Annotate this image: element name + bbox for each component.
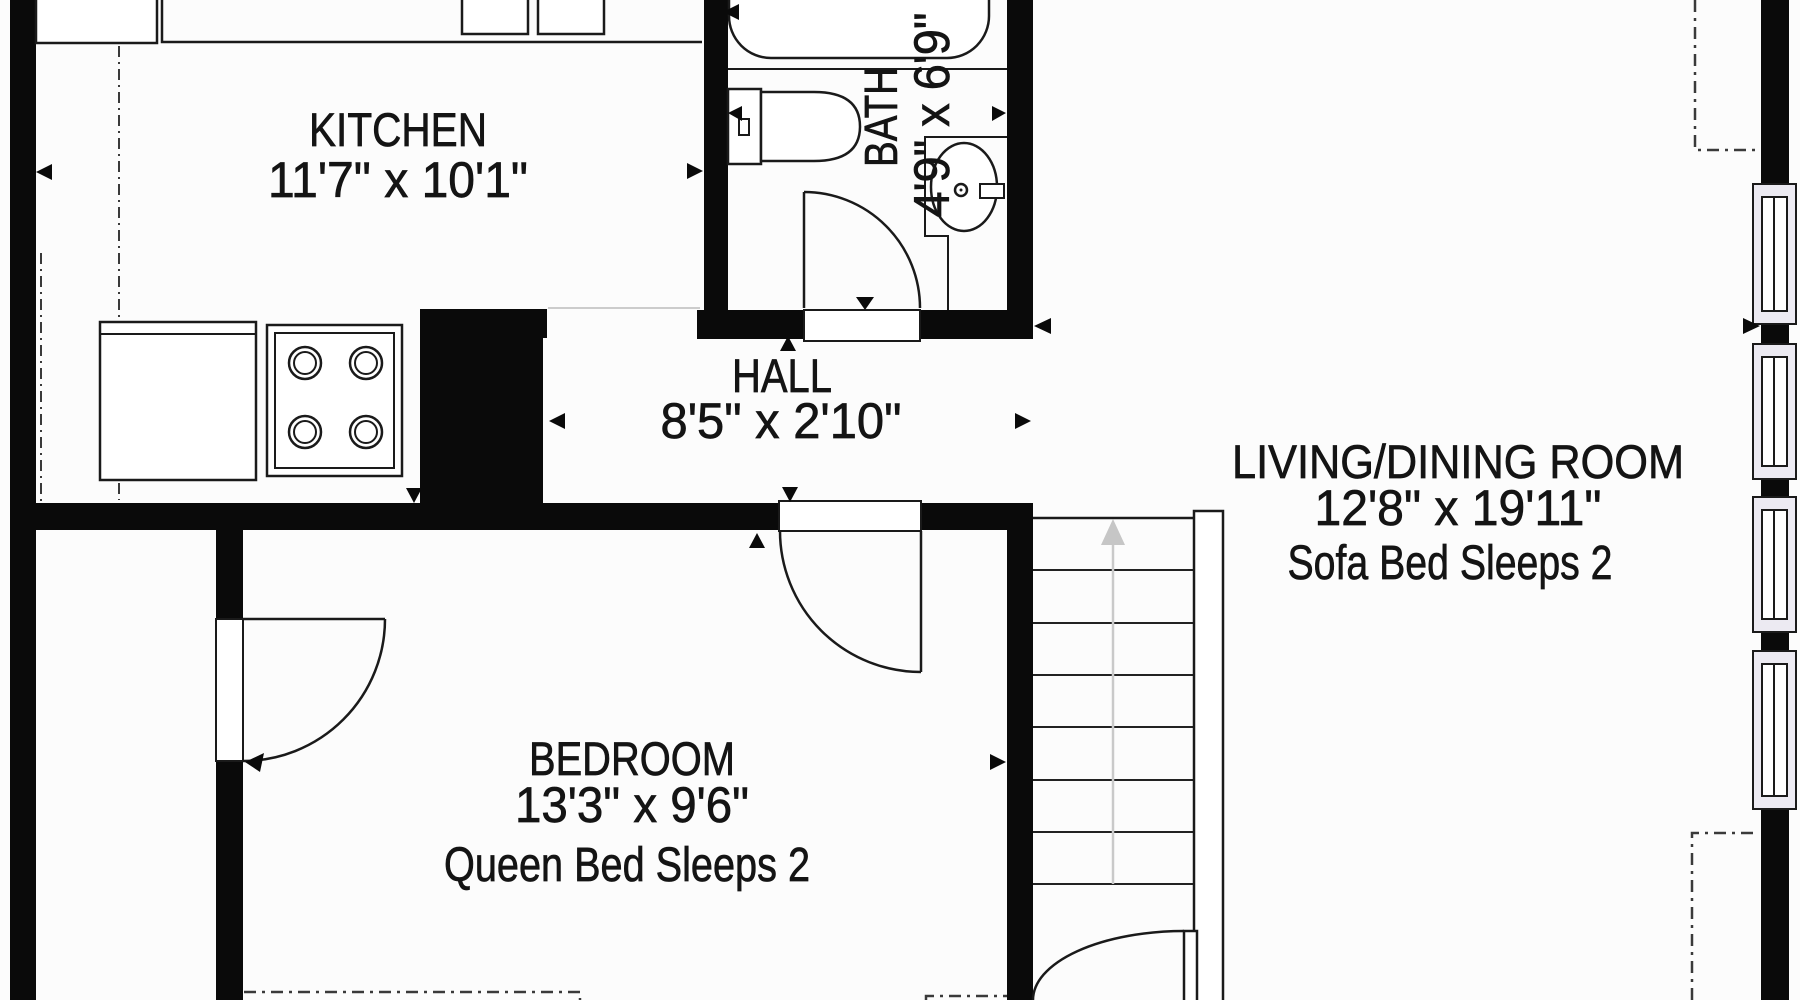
svg-text:Sofa Bed Sleeps 2: Sofa Bed Sleeps 2 bbox=[1288, 537, 1613, 590]
svg-text:8'5" x 2'10": 8'5" x 2'10" bbox=[661, 393, 902, 449]
svg-text:11'7" x 10'1": 11'7" x 10'1" bbox=[268, 152, 528, 208]
svg-text:Queen Bed Sleeps 2: Queen Bed Sleeps 2 bbox=[444, 839, 810, 892]
svg-text:BATH: BATH bbox=[855, 67, 907, 167]
svg-text:12'8" x 19'11": 12'8" x 19'11" bbox=[1315, 480, 1602, 536]
svg-text:KITCHEN: KITCHEN bbox=[309, 103, 487, 156]
svg-text:13'3" x 9'6": 13'3" x 9'6" bbox=[515, 777, 749, 833]
svg-text:4'9" x 6'9": 4'9" x 6'9" bbox=[904, 13, 960, 218]
